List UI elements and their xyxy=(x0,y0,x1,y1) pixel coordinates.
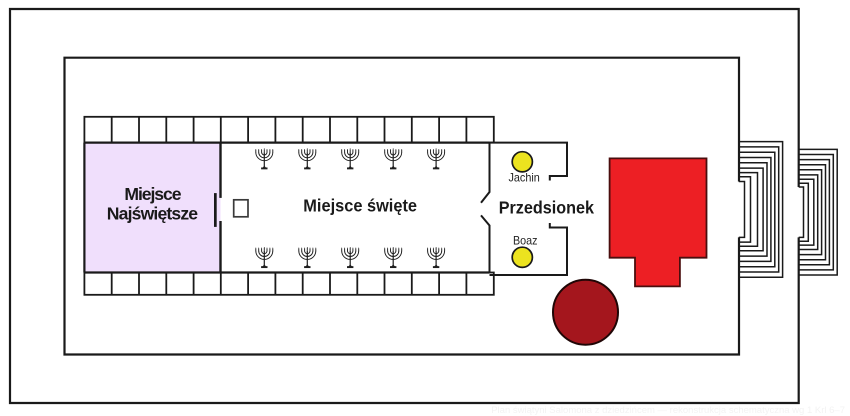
svg-text:Plan świątyni Salomona z dzied: Plan świątyni Salomona z dziedzińcem — r… xyxy=(491,405,845,416)
svg-text:Boaz: Boaz xyxy=(513,234,538,248)
svg-text:Jachin: Jachin xyxy=(509,170,540,184)
svg-text:Najświętsze: Najświętsze xyxy=(107,204,199,224)
svg-text:Przedsionek: Przedsionek xyxy=(499,198,594,218)
svg-text:Miejsce święte: Miejsce święte xyxy=(303,196,417,216)
svg-text:Miejsce: Miejsce xyxy=(124,184,181,204)
